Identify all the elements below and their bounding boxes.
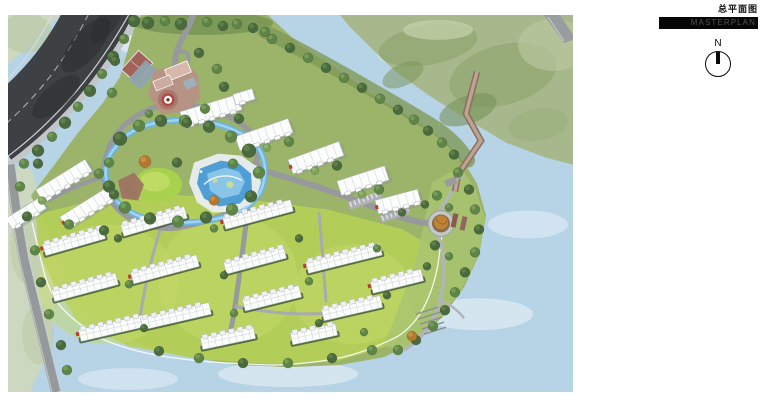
tree-icon xyxy=(32,145,44,157)
tree-icon xyxy=(398,208,406,216)
north-label: N xyxy=(703,38,733,50)
tree-icon xyxy=(172,215,184,227)
tree-icon xyxy=(339,73,349,83)
tree-icon xyxy=(374,185,384,195)
tree-icon xyxy=(303,53,313,63)
tree-icon xyxy=(430,240,440,250)
tree-icon xyxy=(200,104,210,114)
tree-icon xyxy=(327,353,337,363)
tree-icon xyxy=(445,252,453,260)
plan-title-chinese: 总平面图 xyxy=(659,3,758,16)
tree-icon xyxy=(62,365,72,375)
tree-icon xyxy=(253,167,265,179)
tree-icon xyxy=(125,280,133,288)
tree-icon xyxy=(145,110,153,118)
tree-icon xyxy=(59,117,71,129)
tree-icon xyxy=(140,324,148,332)
tree-icon xyxy=(218,21,228,31)
tree-icon xyxy=(428,321,438,331)
tree-icon xyxy=(421,201,429,209)
tree-icon xyxy=(445,204,453,212)
tree-icon xyxy=(194,48,204,58)
tree-icon xyxy=(44,309,54,319)
tree-icon xyxy=(22,211,32,221)
tree-icon xyxy=(220,271,228,279)
tree-icon xyxy=(285,43,295,53)
tree-icon xyxy=(144,212,156,224)
tree-icon xyxy=(315,319,323,327)
tree-icon xyxy=(200,211,212,223)
tree-icon xyxy=(182,118,192,128)
tree-icon xyxy=(423,126,433,136)
tree-icon xyxy=(114,234,122,242)
tree-icon xyxy=(110,56,120,66)
tree-icon xyxy=(212,64,222,74)
tree-icon xyxy=(47,132,57,142)
tree-icon xyxy=(470,204,480,214)
tree-icon xyxy=(33,159,43,169)
tree-icon xyxy=(19,159,29,169)
plan-title-english: MASTERPLAN xyxy=(659,17,758,29)
tree-icon xyxy=(283,358,293,368)
tree-icon xyxy=(209,196,219,206)
tree-icon xyxy=(409,115,419,125)
tree-icon xyxy=(225,131,237,143)
tree-icon xyxy=(175,18,187,30)
tree-icon xyxy=(234,114,244,124)
tree-icon xyxy=(464,185,474,195)
tree-icon xyxy=(84,85,96,97)
tree-icon xyxy=(367,345,377,355)
tree-icon xyxy=(437,138,447,148)
tree-icon xyxy=(453,168,463,178)
tree-icon xyxy=(109,190,119,200)
tree-icon xyxy=(97,69,107,79)
tree-icon xyxy=(113,132,127,146)
site-plan-image xyxy=(8,15,573,392)
tree-icon xyxy=(311,167,319,175)
compass-needle-icon xyxy=(716,52,719,64)
tree-icon xyxy=(267,34,277,44)
tree-icon xyxy=(305,277,313,285)
north-arrow: N xyxy=(703,38,733,77)
tree-icon xyxy=(242,144,256,158)
tree-icon xyxy=(228,159,238,169)
tree-icon xyxy=(56,340,66,350)
tree-icon xyxy=(432,191,442,201)
tree-icon xyxy=(104,158,114,168)
tree-icon xyxy=(321,63,331,73)
tree-icon xyxy=(99,225,109,235)
tree-icon xyxy=(73,102,83,112)
tree-icon xyxy=(172,158,182,168)
titleblock: 总平面图 MASTERPLAN xyxy=(659,3,758,29)
tree-icon xyxy=(295,234,303,242)
tree-icon xyxy=(128,15,140,27)
tree-icon xyxy=(238,358,248,368)
tree-icon xyxy=(450,287,460,297)
tree-icon xyxy=(107,88,117,98)
tree-icon xyxy=(119,34,129,44)
tree-icon xyxy=(358,191,366,199)
tree-icon xyxy=(263,144,271,152)
tree-icon xyxy=(160,16,170,26)
tree-icon xyxy=(142,17,154,29)
tree-icon xyxy=(119,202,131,214)
tree-icon xyxy=(449,150,459,160)
tree-icon xyxy=(470,247,480,257)
tree-icon xyxy=(154,346,164,356)
tree-icon xyxy=(474,224,484,234)
tree-icon xyxy=(284,137,294,147)
tree-icon xyxy=(393,105,403,115)
tree-icon xyxy=(155,115,167,127)
tree-icon xyxy=(226,204,238,216)
tree-icon xyxy=(373,244,381,252)
tree-icon xyxy=(202,17,212,27)
tree-icon xyxy=(383,291,391,299)
tree-icon xyxy=(440,305,450,315)
tree-icon xyxy=(38,197,46,205)
tree-icon xyxy=(423,262,431,270)
tree-icon xyxy=(230,309,238,317)
tree-icon xyxy=(245,191,257,203)
tree-icon xyxy=(94,169,104,179)
tree-icon xyxy=(36,277,46,287)
tree-icon xyxy=(194,353,204,363)
compass-circle-icon xyxy=(705,51,731,77)
tree-icon xyxy=(203,121,215,133)
tree-icon xyxy=(332,161,342,171)
tree-icon xyxy=(393,345,403,355)
tree-icon xyxy=(219,82,229,92)
site-plan-canvas xyxy=(8,15,573,392)
tree-icon xyxy=(407,331,417,341)
tree-icon xyxy=(460,267,470,277)
tree-icon xyxy=(139,156,151,168)
tree-icon xyxy=(357,83,367,93)
tree-icon xyxy=(64,219,74,229)
tree-icon xyxy=(30,245,40,255)
tree-icon xyxy=(15,182,25,192)
plan-title-bar: MASTERPLAN xyxy=(659,17,758,29)
tree-icon xyxy=(210,224,218,232)
tree-icon xyxy=(133,120,145,132)
page: 总平面图 MASTERPLAN N xyxy=(0,0,760,403)
tree-icon xyxy=(360,328,368,336)
tree-icon xyxy=(248,23,258,33)
tree-icon xyxy=(375,94,385,104)
tree-icon xyxy=(232,19,242,29)
